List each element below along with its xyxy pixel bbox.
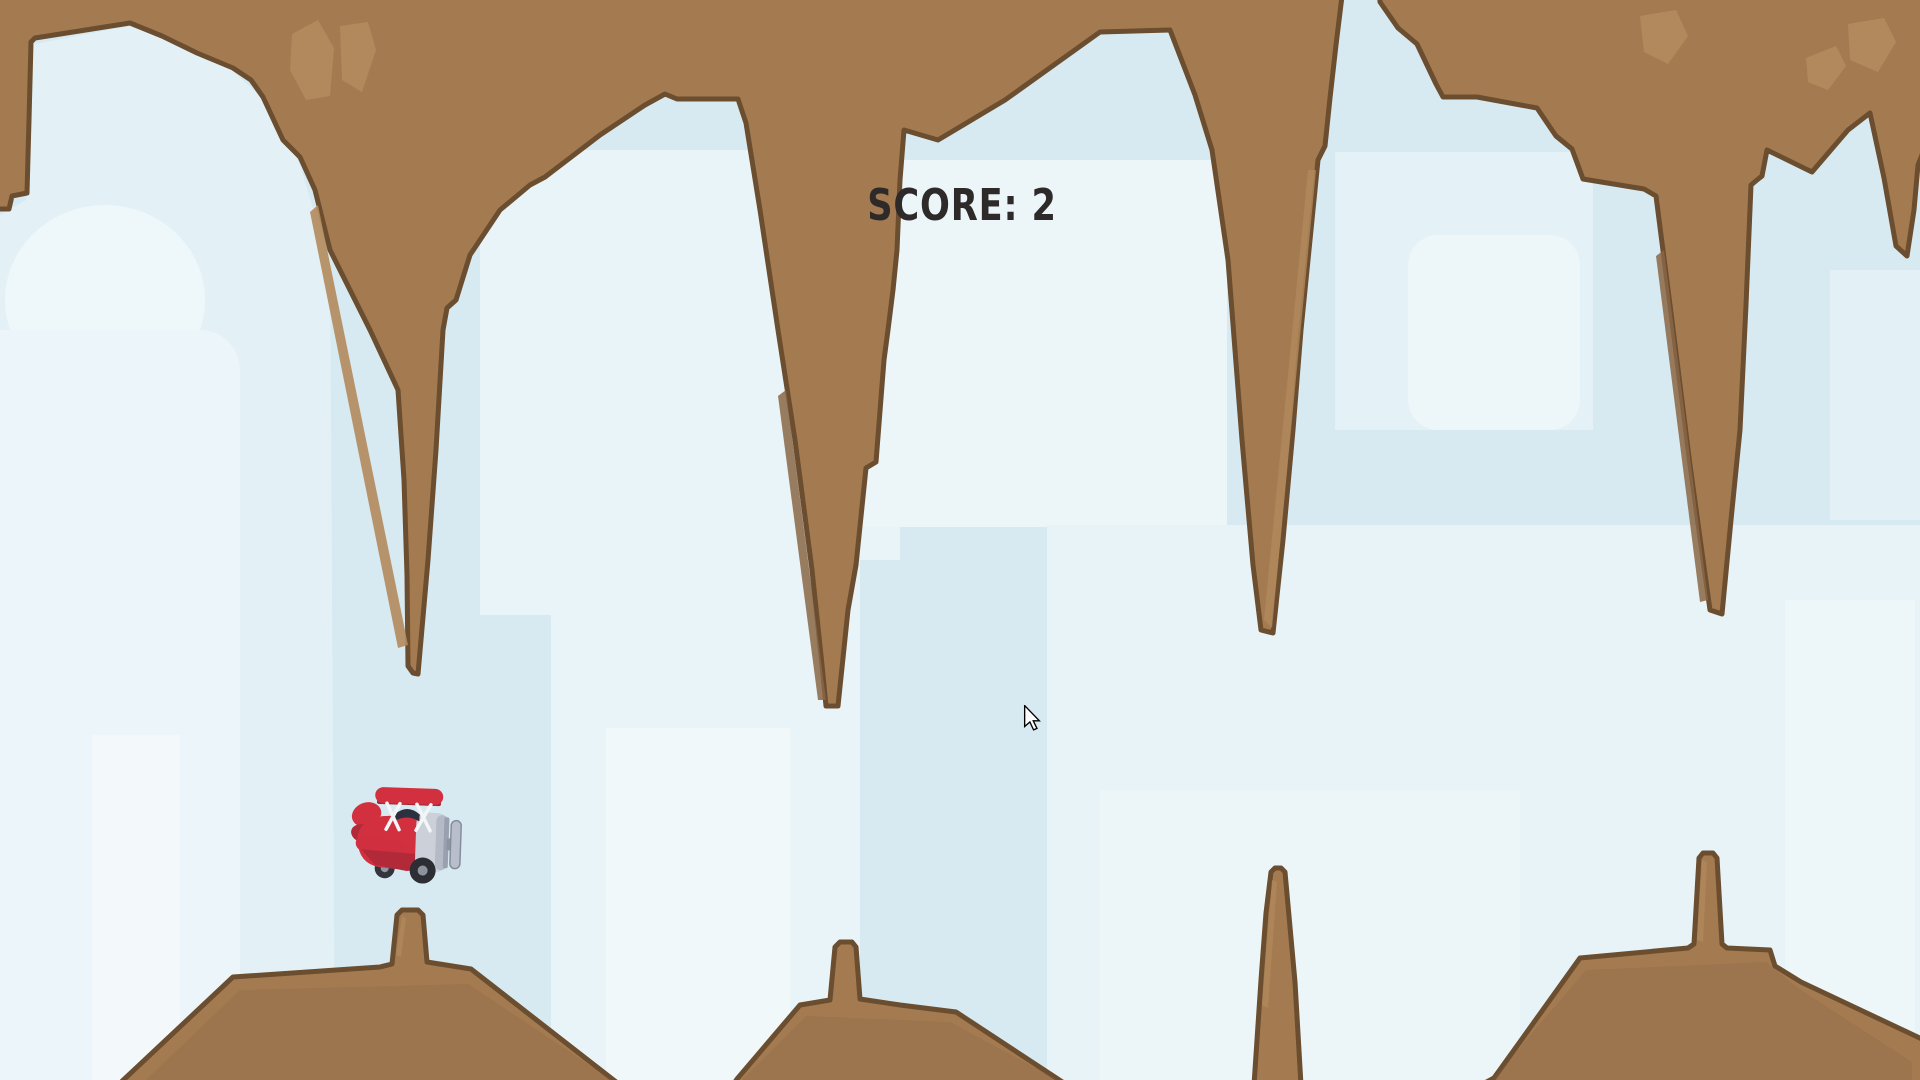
game-viewport[interactable]: SCORE: 2	[0, 0, 1920, 1080]
game-canvas[interactable]	[0, 0, 1920, 1080]
score-display: SCORE: 2	[867, 180, 1056, 231]
